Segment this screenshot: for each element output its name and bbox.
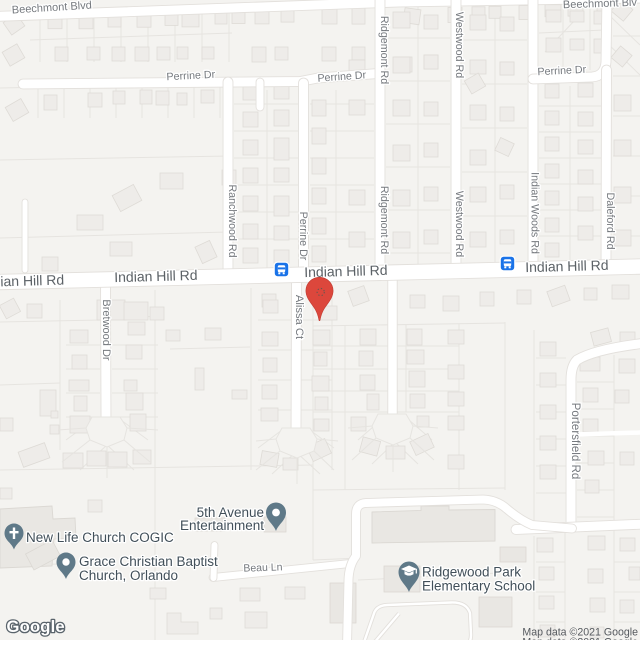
svg-text:Bretwood Dr: Bretwood Dr [100, 299, 112, 360]
svg-text:Map data ©2021 Google: Map data ©2021 Google [522, 637, 638, 641]
svg-text:Elementary School: Elementary School [422, 579, 535, 594]
svg-text:Westwood Rd: Westwood Rd [453, 191, 465, 257]
svg-text:Ridgemont Rd: Ridgemont Rd [378, 186, 390, 254]
svg-text:Church, Orlando: Church, Orlando [79, 568, 178, 583]
svg-text:Google: Google [7, 617, 65, 636]
svg-text:Indian Hill Rd: Indian Hill Rd [114, 267, 198, 285]
svg-text:Ridgewood Park: Ridgewood Park [422, 565, 521, 580]
svg-text:Ranchwood Rd: Ranchwood Rd [226, 184, 238, 257]
svg-text:New Life Church COGIC: New Life Church COGIC [26, 530, 174, 545]
svg-text:Alissa Ct: Alissa Ct [293, 295, 305, 340]
svg-text:Indian Woods Rd: Indian Woods Rd [529, 172, 541, 254]
svg-text:Perrine Dr: Perrine Dr [537, 64, 587, 79]
svg-text:Indian Hill Rd: Indian Hill Rd [525, 257, 609, 275]
svg-text:Beau Ln: Beau Ln [243, 561, 283, 574]
svg-text:Portersfield Rd: Portersfield Rd [569, 403, 582, 480]
svg-text:ian Hill Rd: ian Hill Rd [0, 272, 64, 290]
svg-text:Perrine Dr: Perrine Dr [297, 212, 309, 261]
svg-text:Entertainment: Entertainment [180, 518, 264, 533]
svg-text:Daleford Rd: Daleford Rd [604, 192, 616, 249]
svg-text:Perrine Dr: Perrine Dr [166, 69, 216, 84]
svg-text:Westwood Rd: Westwood Rd [453, 12, 465, 78]
svg-text:Grace Christian Baptist: Grace Christian Baptist [79, 554, 218, 569]
svg-text:Ridgemont Rd: Ridgemont Rd [378, 16, 390, 84]
